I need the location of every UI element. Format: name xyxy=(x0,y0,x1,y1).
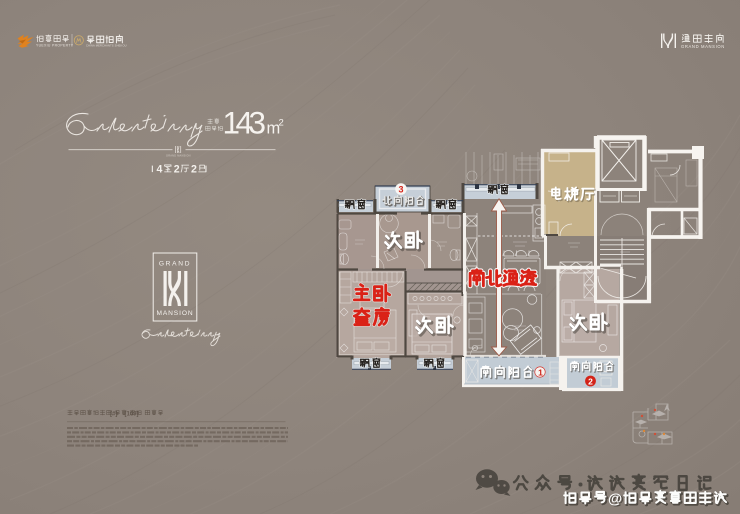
svg-text:MANSION: MANSION xyxy=(156,310,193,317)
svg-text:[#]: [#] xyxy=(110,411,117,417)
svg-text:2: 2 xyxy=(279,118,284,129)
svg-text:[169]: [169] xyxy=(125,411,139,417)
svg-text:GRAND MANSION: GRAND MANSION xyxy=(166,154,191,157)
svg-text:GRAND MANSION: GRAND MANSION xyxy=(681,44,725,49)
svg-text:YUEXIU PROPERTY: YUEXIU PROPERTY xyxy=(36,44,74,48)
svg-text:4: 4 xyxy=(157,163,163,175)
svg-text:@: @ xyxy=(608,492,622,508)
svg-text:GRAND: GRAND xyxy=(159,261,191,268)
svg-text:3: 3 xyxy=(398,185,403,195)
svg-text:2: 2 xyxy=(588,376,593,386)
svg-text:2: 2 xyxy=(191,163,197,175)
svg-text:2: 2 xyxy=(174,163,180,175)
svg-text:143: 143 xyxy=(223,105,267,141)
svg-text:1: 1 xyxy=(538,367,543,377)
svg-text:CHINA MERCHANTS SHEKOU: CHINA MERCHANTS SHEKOU xyxy=(86,43,127,47)
